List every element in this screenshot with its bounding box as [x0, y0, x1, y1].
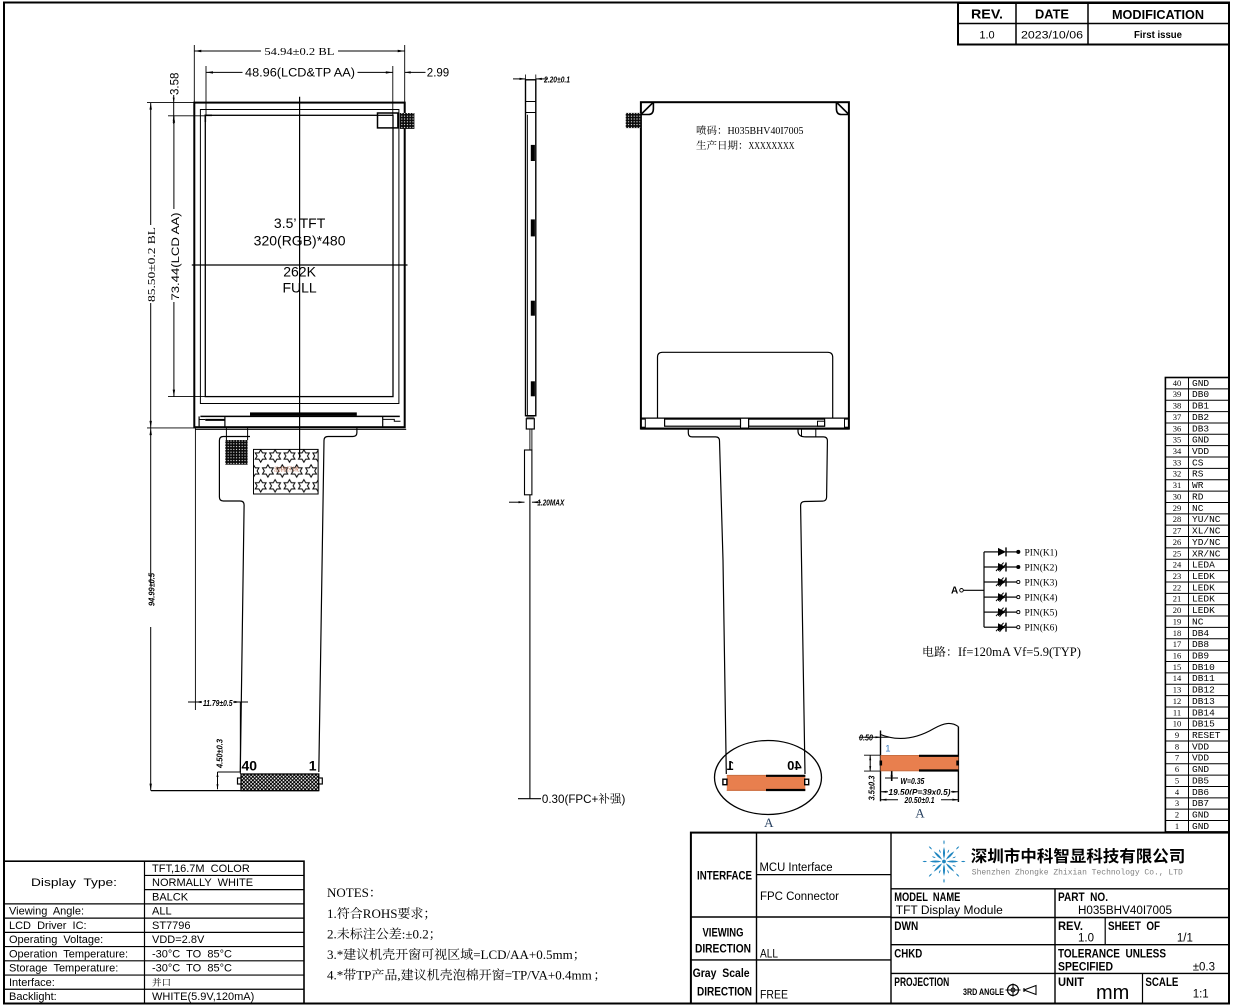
svg-text:mm: mm [1096, 982, 1129, 1004]
svg-text:ALL: ALL [760, 949, 779, 961]
svg-text:DB10: DB10 [1192, 662, 1215, 673]
svg-text:NOTES: NOTES [327, 885, 369, 900]
svg-text:FULL: FULL [282, 280, 316, 296]
svg-text:23: 23 [1173, 571, 1182, 581]
svg-text:19: 19 [1173, 616, 1182, 626]
svg-text:PIN(K2): PIN(K2) [1025, 563, 1058, 573]
svg-text:NC: NC [1192, 503, 1204, 514]
svg-text:A: A [915, 806, 925, 821]
svg-text:22: 22 [1173, 582, 1182, 592]
svg-text:30: 30 [1173, 491, 1182, 501]
svg-text:25: 25 [1173, 548, 1182, 558]
svg-text:PROJECTION: PROJECTION [894, 977, 949, 989]
svg-text:GND: GND [1192, 821, 1209, 832]
svg-text:DIRECTION: DIRECTION [695, 944, 751, 956]
svg-text:4.50±0.3: 4.50±0.3 [215, 739, 225, 769]
svg-text:YU/NC: YU/NC [1192, 514, 1221, 525]
svg-text:7: 7 [1175, 753, 1179, 763]
svg-text:20: 20 [1173, 605, 1182, 615]
svg-text:DB0: DB0 [1192, 389, 1209, 400]
svg-text:H035BHV40I7005: H035BHV40I7005 [1078, 905, 1172, 917]
svg-text:20.50±0.1: 20.50±0.1 [904, 795, 935, 805]
svg-text:36: 36 [1173, 423, 1182, 433]
svg-text:WHITE(5.9V,120mA): WHITE(5.9V,120mA) [152, 991, 254, 1003]
svg-text:DB14: DB14 [1192, 707, 1215, 718]
svg-text:DB9: DB9 [1192, 651, 1209, 662]
svg-text:-30°C TO 85°C: -30°C TO 85°C [152, 963, 232, 975]
svg-text:DB6: DB6 [1192, 787, 1209, 798]
svg-text:28: 28 [1173, 514, 1182, 524]
svg-text:GND: GND [1192, 378, 1209, 389]
svg-text:262K: 262K [283, 264, 316, 280]
svg-text:CHKD: CHKD [894, 949, 922, 961]
svg-text:DB2: DB2 [1192, 412, 1209, 423]
svg-text:DB1: DB1 [1192, 401, 1209, 412]
svg-text:GND: GND [1192, 435, 1209, 446]
svg-text:48.96(LCD&TP AA): 48.96(LCD&TP AA) [245, 68, 355, 80]
svg-text:XR/NC: XR/NC [1192, 548, 1221, 559]
svg-text:54.94±0.2 BL: 54.94±0.2 BL [264, 46, 334, 58]
svg-text:13: 13 [1173, 685, 1182, 695]
svg-text:LEDK: LEDK [1192, 605, 1215, 616]
svg-text:TFT,16.7M COLOR: TFT,16.7M COLOR [152, 863, 250, 875]
svg-text:ROHS: ROHS [363, 906, 398, 921]
svg-text:DB11: DB11 [1192, 673, 1215, 684]
svg-text:TOLERANCE UNLESS: TOLERANCE UNLESS [1058, 949, 1166, 961]
svg-text:2.20±0.1: 2.20±0.1 [543, 75, 570, 85]
svg-text:VDD: VDD [1192, 741, 1209, 752]
svg-text:PIN(K4): PIN(K4) [1025, 593, 1058, 603]
svg-text:2023/10/06: 2023/10/06 [1021, 30, 1083, 42]
svg-text:UNIT: UNIT [1058, 977, 1084, 989]
svg-text:RESET: RESET [1192, 730, 1221, 741]
svg-text:=LCD/AA+0.5mm: =LCD/AA+0.5mm [473, 947, 573, 962]
svg-text:17: 17 [1173, 639, 1182, 649]
svg-text:,: , [397, 968, 400, 983]
svg-text:Viewing Angle:: Viewing Angle: [9, 906, 84, 918]
svg-text:85.50±0.2 BL: 85.50±0.2 BL [147, 227, 158, 302]
svg-text:1.0: 1.0 [1078, 933, 1094, 945]
svg-text:Operation Temperature:: Operation Temperature: [9, 948, 128, 960]
svg-text:1/1: 1/1 [1177, 933, 1193, 945]
svg-text:Gray Scale: Gray Scale [693, 968, 750, 980]
svg-text:Display Type:: Display Type: [31, 877, 117, 889]
svg-text:40: 40 [1173, 378, 1182, 388]
svg-text:32: 32 [1173, 469, 1182, 479]
svg-text:1: 1 [1175, 821, 1179, 831]
svg-text:10: 10 [1173, 719, 1182, 729]
svg-text:BALCK: BALCK [152, 891, 189, 903]
svg-text:WR: WR [1192, 480, 1204, 491]
svg-text:NC: NC [1192, 616, 1204, 627]
svg-text:First issue: First issue [1134, 30, 1182, 41]
svg-text:DB7: DB7 [1192, 798, 1209, 809]
svg-text:94.99±0.5: 94.99±0.5 [147, 573, 157, 606]
svg-text:33: 33 [1173, 457, 1182, 467]
svg-text:FPC Connector: FPC Connector [760, 891, 839, 903]
svg-text:26: 26 [1173, 537, 1182, 547]
svg-text:DB4: DB4 [1192, 628, 1209, 639]
svg-text:0.30(FPC+: 0.30(FPC+ [542, 793, 599, 806]
svg-text:PART NO.: PART NO. [1058, 892, 1108, 904]
svg-text:3.58: 3.58 [170, 73, 182, 95]
svg-text:PIN(K3): PIN(K3) [1025, 578, 1058, 588]
svg-text:H035BHV40I7005: H035BHV40I7005 [728, 125, 804, 137]
svg-text:ST7796: ST7796 [152, 920, 191, 932]
svg-text:PIN(K6): PIN(K6) [1025, 623, 1058, 633]
svg-text:LEDK: LEDK [1192, 571, 1215, 582]
svg-text:NORMALLY WHITE: NORMALLY WHITE [152, 877, 253, 889]
svg-text:CS: CS [1192, 457, 1204, 468]
svg-text:2.99: 2.99 [427, 68, 449, 80]
svg-text:1: 1 [727, 758, 734, 773]
svg-text:XXXXXXXX: XXXXXXXX [749, 140, 795, 152]
svg-text:40: 40 [242, 758, 258, 774]
svg-text:±0.3: ±0.3 [1193, 962, 1215, 974]
svg-text:A: A [764, 815, 774, 830]
svg-text:DATE: DATE [1035, 7, 1069, 22]
svg-text:TP: TP [356, 968, 371, 983]
svg-text:40: 40 [787, 758, 801, 773]
svg-text:14: 14 [1173, 673, 1182, 683]
svg-text:=TP/VA+0.4mm: =TP/VA+0.4mm [505, 968, 592, 983]
svg-text:29: 29 [1173, 503, 1182, 513]
svg-text:DB12: DB12 [1192, 685, 1215, 696]
svg-text:320(RGB)*480: 320(RGB)*480 [254, 233, 346, 249]
svg-text:VDD: VDD [1192, 446, 1209, 457]
svg-text:24: 24 [1173, 560, 1182, 570]
svg-text:VIEWING: VIEWING [703, 928, 744, 940]
svg-text:VDD=2.8V: VDD=2.8V [152, 934, 205, 946]
svg-text:18: 18 [1173, 628, 1182, 638]
svg-text:If=120mA Vf=5.9(TYP): If=120mA Vf=5.9(TYP) [958, 645, 1081, 659]
svg-text:LEDK: LEDK [1192, 594, 1215, 605]
svg-text:PIN(K1): PIN(K1) [1025, 547, 1058, 557]
svg-text:3: 3 [1175, 798, 1179, 808]
svg-text:LEDA: LEDA [1192, 560, 1215, 571]
svg-text:Backlight:: Backlight: [9, 991, 57, 1003]
svg-text:12: 12 [1173, 696, 1182, 706]
svg-text:Operating Voltage:: Operating Voltage: [9, 934, 103, 946]
svg-text:Interface:: Interface: [9, 977, 55, 989]
svg-text:73.44(LCD AA): 73.44(LCD AA) [170, 213, 182, 301]
svg-text:11: 11 [1173, 707, 1181, 717]
svg-text:1: 1 [885, 744, 890, 755]
svg-text:38: 38 [1173, 401, 1182, 411]
svg-text:DB8: DB8 [1192, 639, 1209, 650]
svg-text:4.*: 4.* [327, 968, 343, 983]
svg-text:3.5’ TFT: 3.5’ TFT [274, 215, 326, 231]
svg-text:9: 9 [1175, 730, 1179, 740]
svg-text:8: 8 [1175, 741, 1179, 751]
svg-text:1.0: 1.0 [979, 30, 994, 42]
svg-text:SCALE: SCALE [1145, 977, 1178, 989]
svg-text:LEDK: LEDK [1192, 582, 1215, 593]
svg-text::±0.2: :±0.2 [402, 927, 429, 942]
svg-text:GND: GND [1192, 810, 1209, 821]
svg-text:2.: 2. [327, 927, 337, 942]
svg-text:DIRECTION: DIRECTION [697, 987, 752, 999]
svg-text:11.79±0.5: 11.79±0.5 [203, 698, 233, 708]
svg-text:-30°C TO 85°C: -30°C TO 85°C [152, 948, 232, 960]
svg-text:DB5: DB5 [1192, 775, 1209, 786]
svg-text:35: 35 [1173, 435, 1182, 445]
svg-text:31: 31 [1173, 480, 1182, 490]
svg-text:DB15: DB15 [1192, 719, 1215, 730]
svg-text:DB3: DB3 [1192, 423, 1209, 434]
svg-text:DB13: DB13 [1192, 696, 1215, 707]
svg-text:VDD: VDD [1192, 753, 1209, 764]
svg-text:REV.: REV. [1058, 921, 1083, 933]
svg-text:DWN: DWN [894, 921, 918, 933]
svg-text:Storage Temperature:: Storage Temperature: [9, 963, 118, 975]
svg-text:ALL: ALL [152, 906, 172, 918]
svg-text:FREE: FREE [760, 990, 788, 1002]
svg-text:Shenzhen Zhongke Zhixian Techn: Shenzhen Zhongke Zhixian Technology Co.,… [972, 869, 1183, 878]
svg-text:1: 1 [309, 758, 317, 774]
svg-text:1:1: 1:1 [1193, 989, 1209, 1001]
svg-text:5: 5 [1175, 775, 1179, 785]
svg-text:GND: GND [1192, 764, 1209, 775]
svg-text:): ) [622, 793, 626, 806]
svg-text:MODIFICATION: MODIFICATION [1112, 8, 1204, 22]
svg-text:3.*: 3.* [327, 947, 343, 962]
svg-text:YD/NC: YD/NC [1192, 537, 1221, 548]
svg-text:XL/NC: XL/NC [1192, 526, 1221, 537]
svg-text:16: 16 [1173, 651, 1182, 661]
svg-text:1.20MAX: 1.20MAX [537, 498, 565, 508]
svg-text:15: 15 [1173, 662, 1182, 672]
svg-text:W=0.35: W=0.35 [900, 776, 924, 786]
svg-text:6: 6 [1175, 764, 1179, 774]
svg-text:2: 2 [1175, 810, 1179, 820]
svg-text:SHEET OF: SHEET OF [1108, 921, 1160, 933]
svg-text:21: 21 [1173, 594, 1182, 604]
svg-text:SPECIFIED: SPECIFIED [1058, 962, 1113, 974]
svg-text:INTERFACE: INTERFACE [697, 871, 752, 883]
svg-text:TFT Display Module: TFT Display Module [896, 905, 1003, 917]
svg-text:37: 37 [1173, 412, 1182, 422]
svg-text:A: A [951, 586, 958, 597]
svg-text:LCD Driver IC:: LCD Driver IC: [9, 920, 87, 932]
svg-text:RD: RD [1192, 491, 1204, 502]
svg-text:MODEL NAME: MODEL NAME [894, 892, 960, 904]
svg-text:RS: RS [1192, 469, 1204, 480]
svg-text:PIN(K5): PIN(K5) [1025, 608, 1058, 618]
svg-text:34: 34 [1173, 446, 1182, 456]
svg-text:39: 39 [1173, 389, 1182, 399]
svg-text:REV.: REV. [971, 7, 1003, 22]
svg-text:MCU Interface: MCU Interface [760, 862, 833, 874]
svg-text:27: 27 [1173, 526, 1182, 536]
svg-text:3.5±0.3: 3.5±0.3 [867, 775, 877, 800]
svg-text:1.: 1. [327, 906, 337, 921]
svg-text:3RD ANGLE: 3RD ANGLE [963, 987, 1004, 998]
